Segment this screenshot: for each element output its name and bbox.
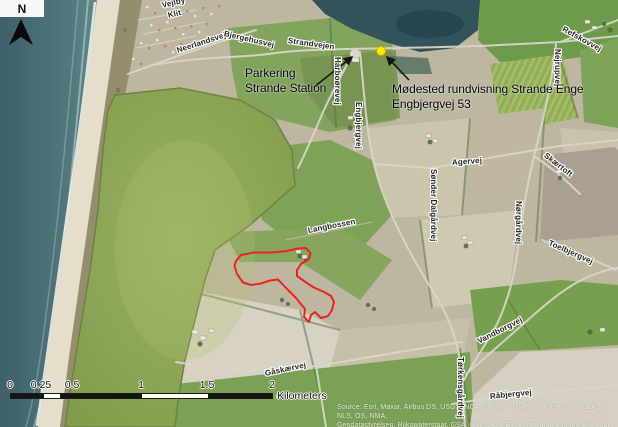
- annotation-meeting-point: Mødested rundvisning Strande Enge Engbje…: [392, 82, 583, 112]
- annotation-parkering-line2: Strande Station: [245, 81, 326, 96]
- scale-bar-segment: [60, 394, 142, 398]
- meeting-point-marker: [377, 47, 386, 56]
- scale-tick-025: 0.25: [31, 379, 51, 391]
- road-label-engbjergvej: Engbjergvej: [354, 102, 363, 149]
- annotation-parkering: Parkering Strande Station: [245, 66, 326, 96]
- attribution-line1: Source: Esri, Maxar, Airbus DS, USGS, NG…: [337, 403, 617, 421]
- attribution-line2: Geodatastyrelsen, Rijkswaterstaat, GSA, …: [337, 421, 617, 427]
- scale-bar-unit: Kilometers: [277, 390, 327, 402]
- map-attribution: Source: Esri, Maxar, Airbus DS, USGS, NG…: [337, 403, 617, 427]
- scale-bar-segment: [208, 394, 272, 398]
- road-label-harboorevej: Harboørevej: [333, 57, 342, 105]
- north-label: N: [18, 2, 27, 16]
- scale-bar-segment: [11, 394, 44, 398]
- aerial-imagery: [0, 0, 618, 427]
- lagoon-shading: [115, 140, 255, 360]
- scale-bar-track: [10, 393, 273, 399]
- annotation-meeting-line1: Mødested rundvisning Strande Enge: [392, 82, 583, 97]
- annotation-meeting-line2: Engbjergvej 53: [392, 97, 583, 112]
- scale-tick-05: 0.5: [65, 379, 80, 391]
- north-indicator: N: [0, 0, 44, 17]
- scale-tick-15: 1.5: [200, 379, 215, 391]
- road-label-nejrupvej: Nejrupvej: [553, 49, 562, 86]
- scale-tick-0: 0: [7, 379, 13, 391]
- road-label-norgardvej: Nørgårdvej: [514, 201, 523, 244]
- scale-tick-2: 2: [269, 379, 275, 391]
- map-canvas[interactable]: N Vejlby Klit Neerlandsvej Bjergehusvej …: [0, 0, 618, 427]
- annotation-parkering-line1: Parkering: [245, 66, 326, 81]
- road-label-sonder-dalgardvej: Sønder Dalgårdvej: [429, 169, 438, 241]
- scale-tick-1: 1: [138, 379, 144, 391]
